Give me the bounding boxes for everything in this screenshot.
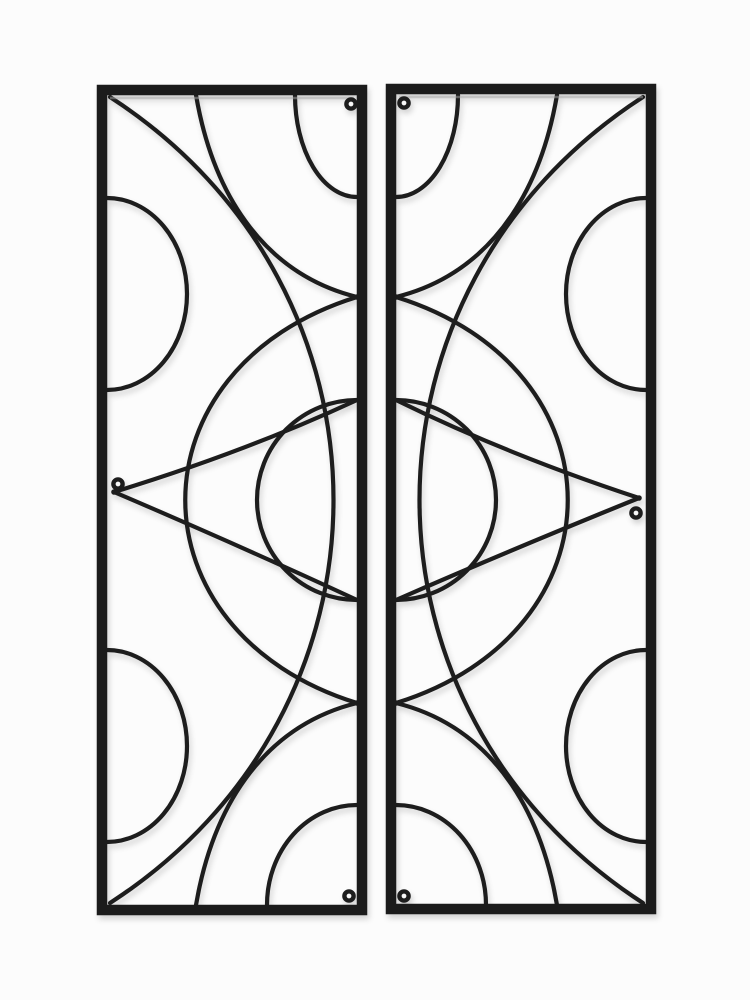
product-photo [0,0,750,1000]
right-vertex-dot-right-middle [636,495,642,501]
mounting-eyelet-bottom-left [399,891,408,900]
mounting-eyelet-top-right [346,99,355,108]
mounting-eyelet-middle-left [113,479,122,488]
mounting-eyelet-middle-right [631,508,640,517]
wall-panels-illustration [0,0,750,1000]
mounting-eyelet-bottom-right [344,891,353,900]
mounting-eyelet-top-left [399,98,408,107]
